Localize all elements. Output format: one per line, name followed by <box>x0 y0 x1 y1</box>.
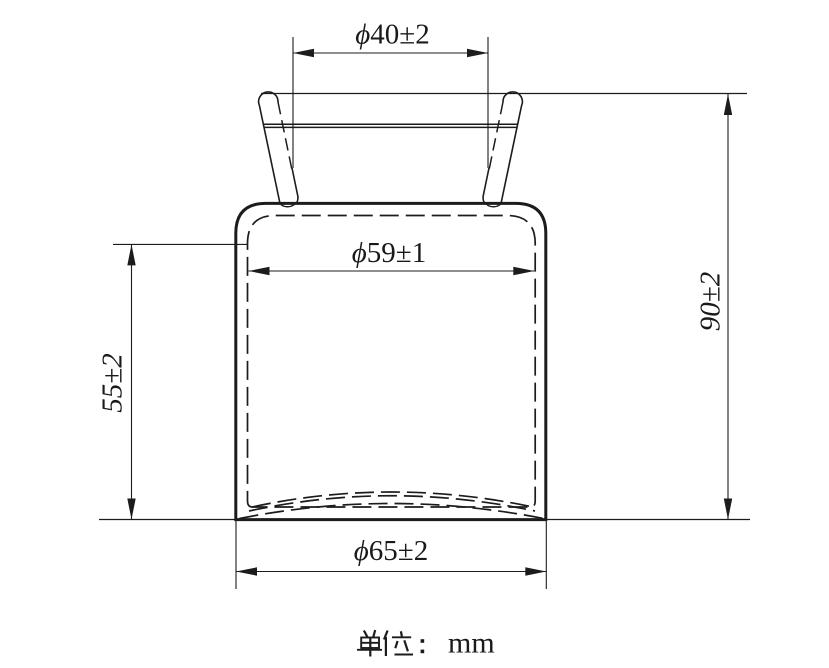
svg-text:ϕ59±1: ϕ59±1 <box>352 237 426 269</box>
svg-text:mm: mm <box>448 627 495 660</box>
svg-text:90±2: 90±2 <box>695 272 727 331</box>
svg-text:ϕ65±2: ϕ65±2 <box>354 535 428 567</box>
svg-text:ϕ40±2: ϕ40±2 <box>355 19 429 51</box>
svg-text:55±2: 55±2 <box>97 353 129 412</box>
